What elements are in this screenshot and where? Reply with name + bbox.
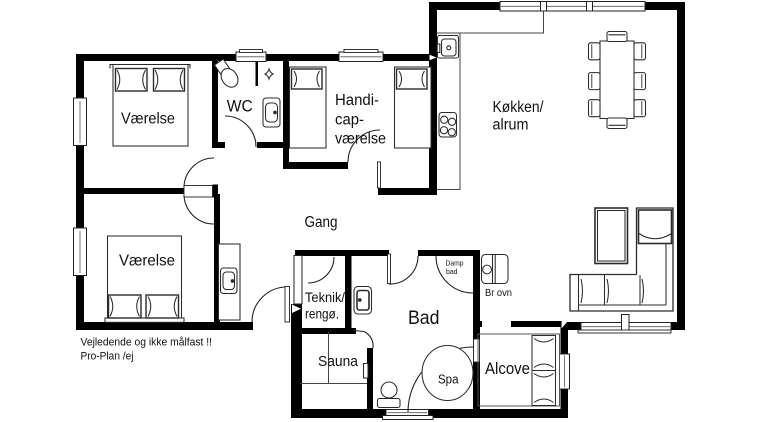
svg-text:rengø.: rengø. [305, 307, 339, 322]
svg-text:Alcove: Alcove [485, 360, 530, 378]
svg-text:værelse: værelse [335, 131, 386, 148]
svg-text:alrum: alrum [493, 117, 529, 134]
svg-text:WC: WC [227, 98, 253, 116]
svg-text:Vejledende og ikke målfast !!: Vejledende og ikke målfast !! [81, 336, 213, 348]
svg-text:Pro-Plan /ej: Pro-Plan /ej [81, 350, 134, 362]
svg-text:cap-: cap- [335, 112, 364, 129]
svg-text:Værelse: Værelse [121, 111, 175, 128]
svg-text:Køkken/: Køkken/ [493, 99, 545, 116]
svg-text:Br ovn: Br ovn [485, 288, 512, 299]
svg-text:Handi-: Handi- [335, 92, 379, 109]
svg-text:Teknik/: Teknik/ [305, 290, 345, 305]
svg-text:bad: bad [446, 267, 458, 276]
svg-text:Gang: Gang [305, 214, 338, 231]
svg-text:Bad: Bad [408, 308, 440, 329]
svg-text:Værelse: Værelse [119, 253, 175, 270]
svg-text:Sauna: Sauna [318, 353, 359, 370]
svg-text:Spa: Spa [438, 373, 459, 387]
